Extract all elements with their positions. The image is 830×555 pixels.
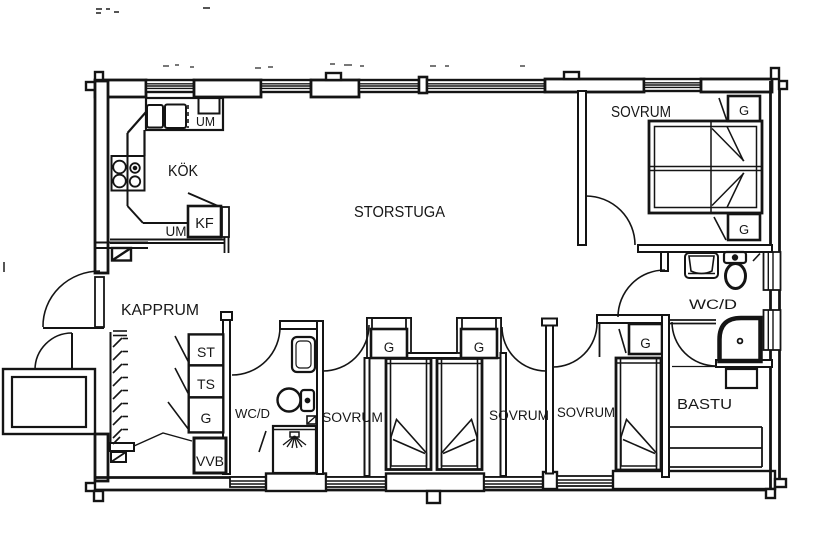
svg-text:KF: KF [195, 216, 214, 232]
svg-text:WC/D: WC/D [689, 297, 737, 312]
svg-text:ST: ST [197, 344, 215, 360]
svg-text:G: G [201, 410, 212, 426]
svg-text:VVB: VVB [196, 453, 224, 469]
svg-text:KAPPRUM: KAPPRUM [121, 302, 199, 319]
svg-text:SOVRUM: SOVRUM [611, 104, 671, 121]
svg-text:SOVRUM: SOVRUM [322, 410, 383, 425]
svg-text:KÖK: KÖK [168, 162, 198, 180]
svg-text:SOVRUM: SOVRUM [557, 405, 615, 420]
svg-text:G: G [384, 340, 395, 355]
svg-text:G: G [640, 336, 651, 351]
svg-text:BASTU: BASTU [677, 396, 732, 413]
svg-text:G: G [739, 222, 749, 237]
svg-text:G: G [739, 103, 749, 118]
svg-text:UM: UM [166, 224, 187, 239]
svg-text:TS: TS [197, 376, 215, 392]
svg-text:UM: UM [196, 115, 215, 129]
svg-text:SOVRUM: SOVRUM [489, 408, 549, 423]
svg-text:WC/D: WC/D [235, 407, 270, 421]
svg-text:STORSTUGA: STORSTUGA [354, 204, 445, 221]
svg-text:G: G [474, 340, 485, 355]
